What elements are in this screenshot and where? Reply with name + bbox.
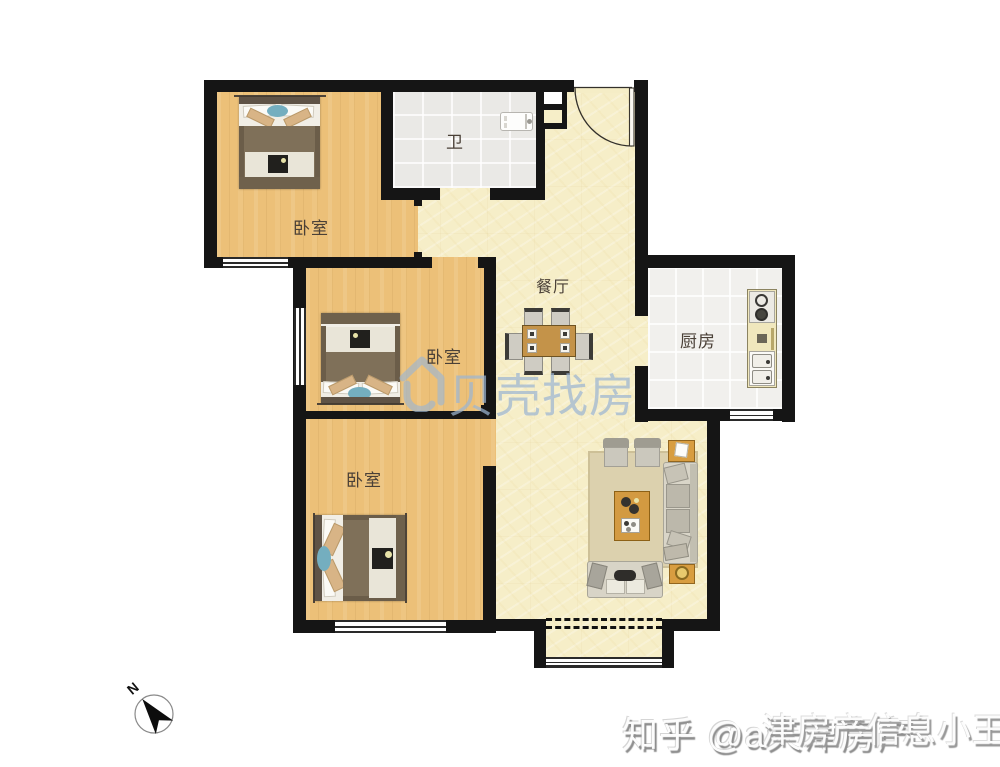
svg-text:N: N — [124, 679, 142, 698]
